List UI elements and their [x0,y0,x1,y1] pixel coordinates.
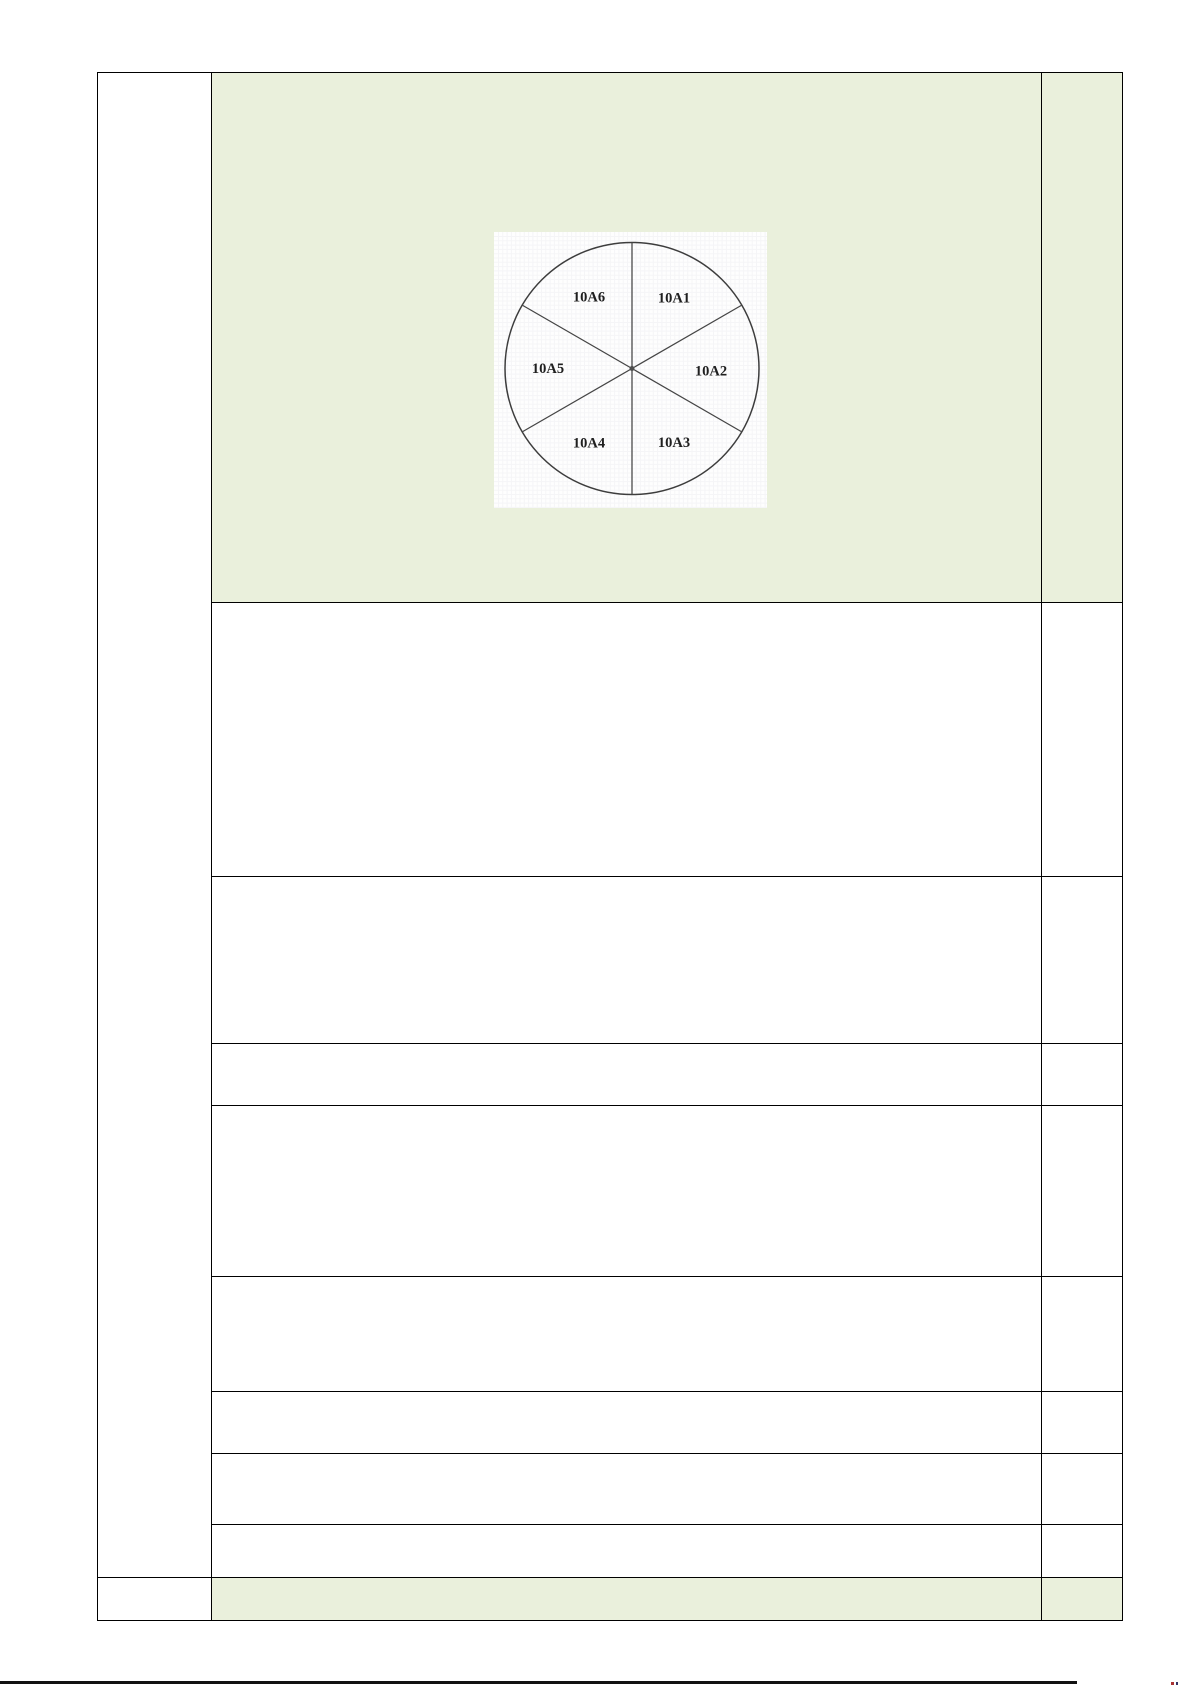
svg-text:10A4: 10A4 [573,436,605,452]
svg-text:10A1: 10A1 [658,291,690,307]
svg-text:10A2: 10A2 [695,364,727,380]
svg-text:10A3: 10A3 [658,435,690,451]
svg-text:10A6: 10A6 [573,290,605,306]
svg-text:10A5: 10A5 [532,361,564,377]
